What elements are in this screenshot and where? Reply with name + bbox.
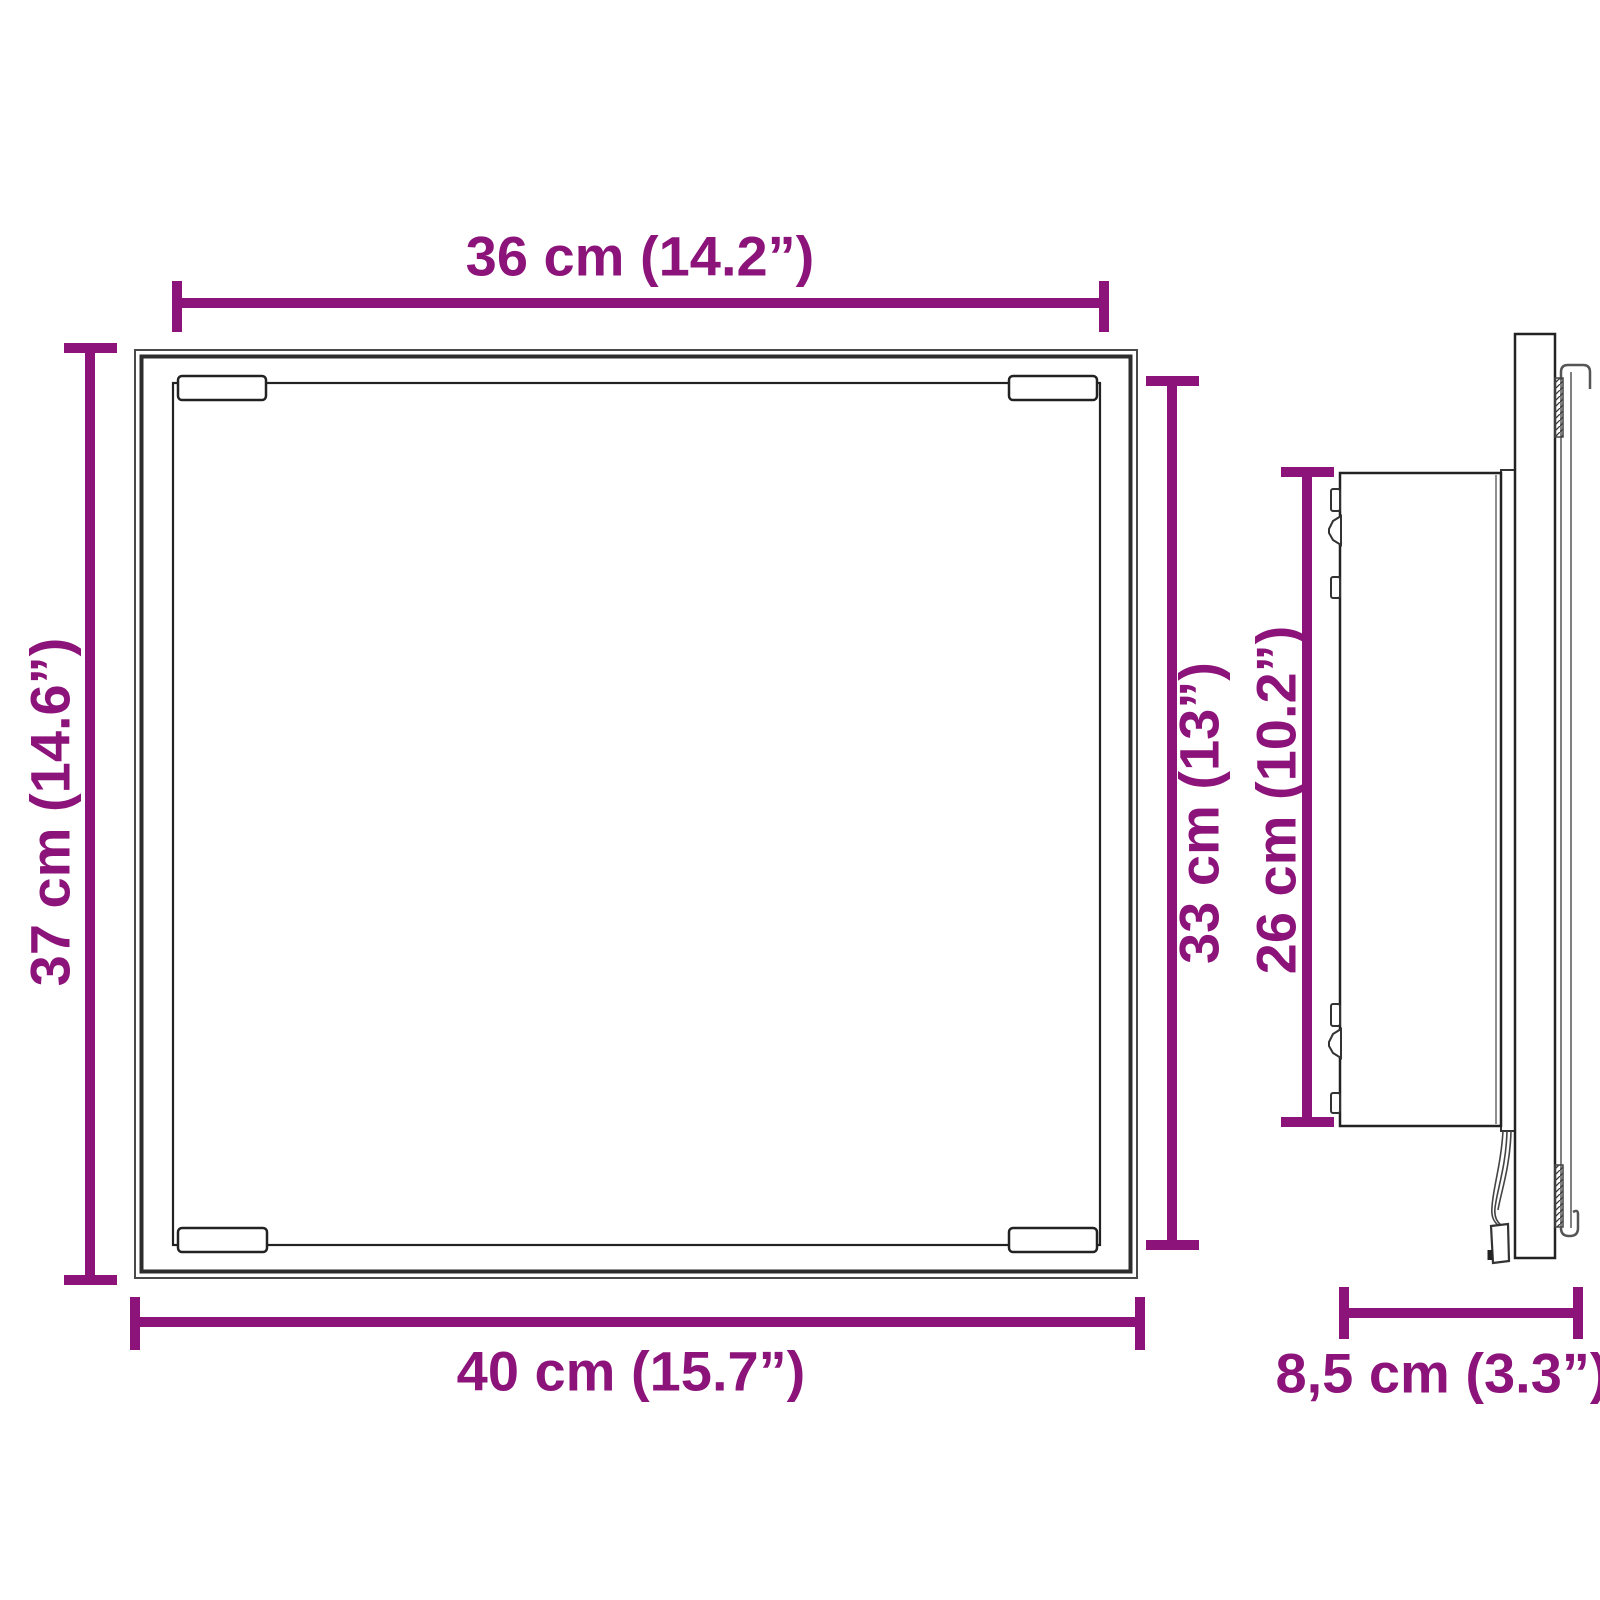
front-view [135,350,1137,1278]
dim-label-housing-height: 26 cm (10.2”) [1245,626,1308,975]
dim-label-depth: 8,5 cm (3.3”) [1275,1342,1600,1405]
spring-clip-top-2 [1331,577,1340,598]
dim-tick-frame-height-top [64,343,117,353]
dim-tick-depth-left [1339,1287,1349,1339]
corner-clip-top-right [1009,376,1097,400]
dim-tick-glass-height-top [1146,376,1199,386]
glass-panel-outline [173,383,1100,1245]
dim-line-frame-width [135,1317,1140,1327]
rail-teeth-bottom [1555,1165,1563,1227]
power-plug [1491,1224,1509,1263]
dim-label-frame-height: 37 cm (14.6”) [19,638,82,987]
side-view [1329,334,1590,1263]
dim-tick-housing-height-bottom [1281,1117,1334,1127]
dim-tick-glass-width-right [1099,281,1109,332]
dim-label-glass-width: 36 cm (14.2”) [466,225,815,288]
product-dimension-drawing: 36 cm (14.2”) 37 cm (14.6”) 33 cm (13”) … [0,0,1600,1600]
dimension-diagram-canvas: 36 cm (14.2”) 37 cm (14.6”) 33 cm (13”) … [0,0,1600,1600]
dim-tick-glass-width-left [172,281,182,332]
dim-tick-frame-width-left [130,1297,140,1350]
corner-clip-bottom-right [1009,1228,1097,1252]
dim-tick-glass-height-bottom [1146,1240,1199,1250]
spring-clip-bottom-1 [1331,1004,1340,1026]
rail-teeth-top [1555,378,1563,437]
corner-clip-top-left [178,376,266,400]
housing-box [1340,473,1501,1126]
dim-line-depth [1344,1308,1578,1318]
dim-line-glass-width [177,298,1104,308]
spring-clip-top-1 [1331,489,1340,511]
corner-clip-bottom-left [178,1228,267,1252]
dim-line-frame-height [85,348,95,1280]
power-plug-notch [1488,1250,1493,1260]
dim-tick-frame-width-right [1135,1297,1145,1350]
spring-clip-bottom-2 [1331,1093,1340,1113]
dim-label-glass-height: 33 cm (13”) [1168,662,1231,964]
dim-label-frame-width: 40 cm (15.7”) [457,1340,806,1403]
mirror-panel-side [1515,334,1555,1258]
dim-tick-frame-height-bottom [64,1275,117,1285]
dim-tick-depth-right [1573,1287,1583,1339]
dim-tick-housing-height-top [1281,467,1334,477]
